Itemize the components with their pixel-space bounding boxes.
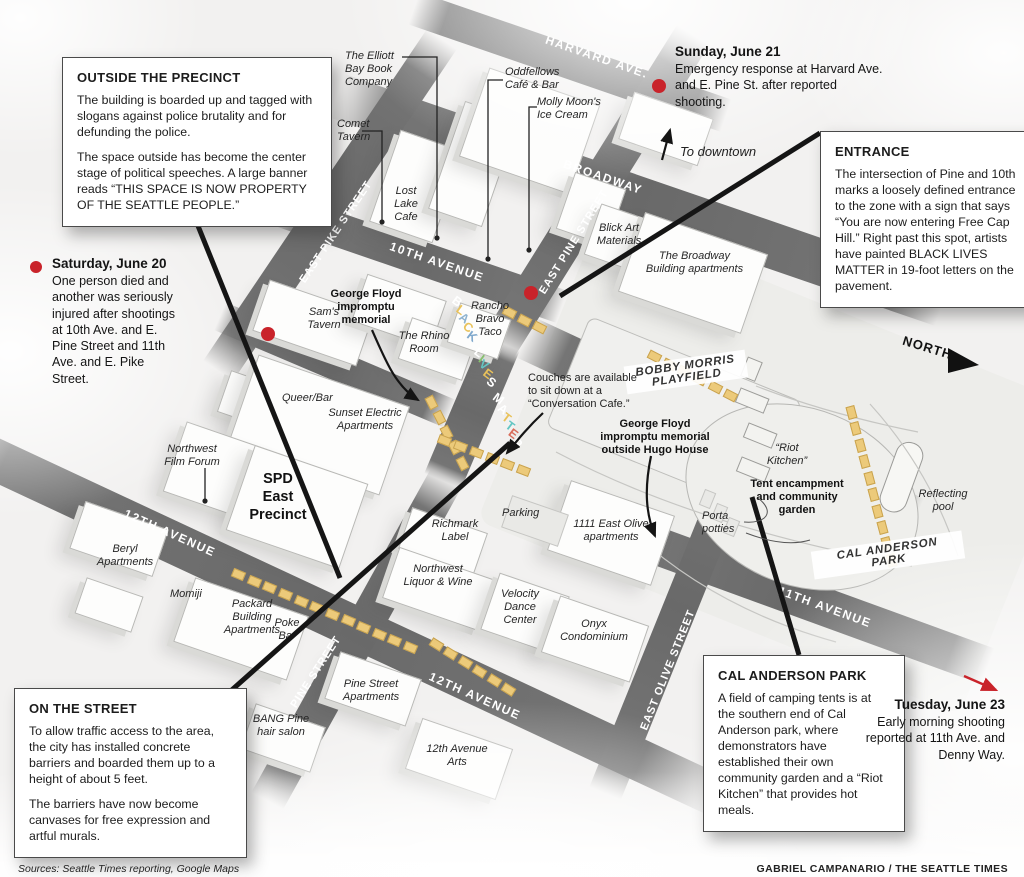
barrier-dash [532,321,548,335]
shooting-dot-11th-pike [261,327,275,341]
barrier-dash [517,313,533,327]
label-blick: Blick Art Materials [588,222,650,248]
barrier-dash [372,628,387,641]
label-poke-bar: Poke Bar [266,617,308,643]
barrier-dash [403,641,418,654]
barrier-dash [885,553,897,568]
arrow-hugo-house [647,456,655,536]
street-nagle-place [516,317,924,539]
building [480,573,570,654]
event-tuesday: Tuesday, June 23 Early morning shooting … [855,697,1005,763]
cal-anderson-label: CAL ANDERSON PARK [811,531,965,580]
barrier-dash [432,410,446,426]
label-richmark: Richmark Label [424,518,486,544]
barrier-dash [340,614,355,627]
barrier-dash [662,357,678,371]
barrier-dash [429,637,445,652]
street-east-pike-street [203,29,457,381]
street-harvard-ave [408,0,731,132]
callout-text: The barriers have now become canvases fo… [29,797,232,845]
park-paths [556,386,958,642]
label-elliott-bay: The Elliott Bay Book Company [345,50,435,89]
barrier-dash [863,471,875,486]
barrier-dash [425,395,439,411]
reflecting-pool-shape [876,439,926,516]
barrier-dash [231,568,246,581]
porta-potties-leaders [744,498,810,543]
label-porta-potties: Porta potties [702,510,748,536]
callout-text: The intersection of Pine and 10th marks … [835,167,1024,295]
street-east-olive-street [589,416,770,800]
building [722,517,739,537]
label-molly-moon: Molly Moon's Ice Cream [537,96,629,122]
building [541,595,649,682]
leader-entrance [560,133,820,296]
label-twelfth-ave-arts: 12th Avenue Arts [418,743,496,769]
garden-beds [735,357,776,482]
barrier-dash [457,655,473,670]
callout-title: OUTSIDE THE PRECINCT [77,70,317,85]
barrier-dash [692,373,708,387]
label-nw-film-forum: Northwest Film Forum [150,443,234,469]
barrier-dash [850,421,862,436]
barrier-dash [516,464,531,477]
barrier-dash [453,440,468,453]
label-east-olive-apts: 1111 East Olive apartments [562,518,660,544]
barrier-dash [859,454,871,469]
north-label: NORTH [901,333,954,362]
arrow-to-downtown [662,130,670,160]
callout-text: A field of camping tents is at the south… [718,691,890,819]
street-name-tenth: 10TH AVENUE [388,239,486,284]
building [252,280,374,367]
building [74,577,143,632]
building [173,577,309,680]
callout-title: ON THE STREET [29,701,232,716]
building [556,172,627,246]
callout-text: The space outside has become the center … [77,150,317,214]
callout-cal-anderson-park: CAL ANDERSON PARK A field of camping ten… [703,655,905,832]
barrier-dash [309,601,324,614]
street-twelfth-avenue [0,407,730,817]
barrier-dash [262,581,277,594]
street-name-broadway: BROADWAY [561,157,644,197]
shooting-dot-10th-pine [524,286,538,300]
barrier-dash [872,504,884,519]
building [618,92,714,167]
event-text: Early morning shooting reported at 11th … [855,714,1005,763]
black-lives-matter-mural: BLACK LIVES MATTER [447,293,528,451]
street-eleventh-avenue-upper [214,302,456,427]
label-spd-precinct: SPD East Precinct [240,470,316,524]
barrier-dash [845,405,857,420]
building [369,129,464,243]
label-queer-bar: Queer/Bar [282,392,354,405]
label-velocity: Velocity Dance Center [489,588,551,627]
label-parking: Parking [502,507,550,520]
label-hugo-house: George Floyd impromptu memorial outside … [596,418,714,457]
callout-entrance: ENTRANCE The intersection of Pine and 10… [820,131,1024,308]
barrier-dash [246,574,261,587]
barrier-dash [501,682,517,697]
label-reflecting-pool: Reflecting pool [912,488,974,514]
label-broadway-building: The Broadway Building apartments [622,250,767,276]
label-sunset-electric: Sunset Electric Apartments [306,407,424,433]
north-arrow-icon [948,348,979,373]
barrier-dash [677,365,693,379]
barrier-dash [876,520,888,535]
shooting-dot-harvard-pine [652,79,666,93]
street-eleventh-avenue [606,512,995,685]
cal-anderson-park-area [477,215,1024,716]
callout-text: The building is boarded up and tagged wi… [77,93,317,141]
barrier-dash [437,434,452,447]
barrier-dash [278,588,293,601]
building [226,445,369,569]
building [547,480,675,586]
street-pine-street-lower [252,468,463,809]
barrier-dash [440,425,454,441]
label-sams-tavern: Sam's Tavern [296,306,352,332]
barrier-dash [325,608,340,621]
event-sunday: Sunday, June 21 Emergency response at Ha… [675,44,887,110]
street-tenth-avenue [273,193,568,323]
building [228,355,410,496]
label-oddfellows: Oddfellows Café & Bar [505,66,600,92]
label-momiji: Momiji [170,588,222,601]
leader-on-the-street [216,443,510,704]
barrier-dash [854,438,866,453]
event-date: Tuesday, June 23 [855,697,1005,712]
barrier-dash [502,306,518,320]
building [351,274,447,349]
barrier-dash [448,440,462,456]
barrier-dash [293,594,308,607]
building [501,495,569,547]
event-text: One person died and another was seriousl… [52,273,180,387]
callout-outside-precinct: OUTSIDE THE PRECINCT The building is boa… [62,57,332,227]
label-tent-encampment: Tent encampment and community garden [748,478,846,517]
barrier-dash [722,388,738,402]
label-beryl: Beryl Apartments [90,543,160,569]
building [458,68,599,195]
curved-arrows [372,130,670,536]
building [382,547,496,631]
barrier-dash [707,380,723,394]
street-name-east_pine: EAST PINE STREET [537,188,611,297]
barrier-dash [486,673,502,688]
street-name-eleventh: 11TH AVENUE [776,584,873,631]
label-nw-liquor: Northwest Liquor & Wine [392,563,484,589]
event-saturday: Saturday, June 20 One person died and an… [52,256,180,387]
label-george-floyd-memorial: George Floyd impromptu memorial [325,288,407,327]
label-onyx: Onyx Condominium [548,618,640,644]
bobby-morris-label: BOBBY MORRIS PLAYFIELD [624,350,749,395]
street-broadway [330,74,950,326]
callout-title: ENTRANCE [835,144,1024,159]
label-lost-lake: Lost Lake Cafe [383,185,429,224]
label-bang-pine: BANG Pine hair salon [245,713,317,739]
leader-outside-precinct [190,206,340,578]
saturday-bullet-dot [30,261,42,273]
street-name-east_olive: EAST OLIVE STREET [638,608,697,732]
barrier-dash [455,455,469,471]
building [240,703,326,772]
barrier-dash [500,458,515,471]
event-date: Saturday, June 20 [52,256,180,271]
street-east-pine-street-upper [481,25,709,359]
building [405,718,513,800]
map-canvas: HARVARD AVE.BROADWAY10TH AVENUEEAST PIKE… [0,0,1024,877]
label-couches: Couches are available to sit down at a “… [528,372,644,411]
building [698,489,715,509]
label-packard: Packard Building Apartments [196,598,308,637]
tuesday-red-arrow-icon [964,676,996,690]
building [710,503,727,523]
barrier-dash [356,621,371,634]
barrier-dash [387,634,402,647]
label-rhino-room: The Rhino Room [388,330,460,356]
to-downtown-label: To downtown [680,144,756,159]
callout-title: CAL ANDERSON PARK [718,668,890,683]
label-pine-street-apts: Pine Street Apartments [330,678,412,704]
building [618,212,768,334]
building [217,370,301,436]
street-name-pine: PINE STREET [288,634,343,710]
building [584,203,655,272]
barrier-dash [881,536,893,551]
street-name-twelfth_upper: 12TH AVENUE [122,506,218,559]
barrier-dash [443,646,459,661]
credit-line: GABRIEL CAMPANARIO / THE SEATTLE TIMES [757,863,1008,875]
barrier-dash [867,487,879,502]
street-name-harvard: HARVARD AVE. [544,33,651,81]
street-name-east_pike: EAST PIKE STREET [297,179,374,286]
bobby-morris-field-shape [546,317,802,512]
label-riot-kitchen: “Riot Kitchen” [760,442,814,468]
barrier-dash [484,452,499,465]
building [69,501,168,577]
callout-on-the-street: ON THE STREET To allow traffic access to… [14,688,247,858]
building [324,651,422,726]
callout-text: To allow traffic access to the area, the… [29,724,232,788]
barrier-dash [469,446,484,459]
leader-cal-anderson [752,497,799,655]
label-leader-lines [205,57,537,499]
barrier-dash [647,350,663,364]
barrier-dash [472,664,488,679]
building [427,101,518,227]
label-comet: Comet Tavern [337,118,397,144]
arrow-memorial [372,330,418,400]
building [398,507,488,575]
sources-note: Sources: Seattle Times reporting, Google… [18,863,239,875]
street-name-twelfth_lower: 12TH AVENUE [427,669,523,722]
event-text: Emergency response at Harvard Ave. and E… [675,61,887,110]
park-lawn-shape [658,370,946,623]
building [163,421,284,524]
event-date: Sunday, June 21 [675,44,887,59]
